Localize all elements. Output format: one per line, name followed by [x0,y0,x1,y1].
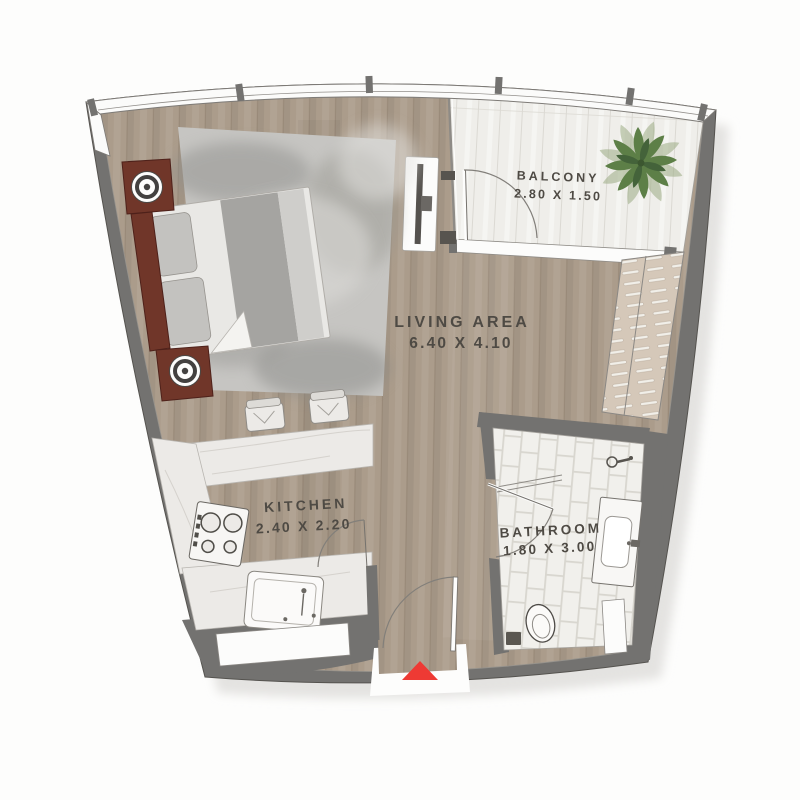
bed [143,187,331,361]
bathroom: BATHROOM 1.80 X 3.00 [477,412,668,660]
living-area-label: LIVING AREA [394,314,530,331]
bar-stool [244,397,285,432]
balcony-label: BALCONY [517,169,600,186]
kitchen-sink [244,571,325,633]
mullion-post [495,77,503,94]
floor-plan: BALCONY 2.80 X 1.50 [0,0,800,800]
balcony: BALCONY 2.80 X 1.50 [440,98,703,268]
partition-post [440,231,456,244]
table-lamp-icon [132,172,163,203]
stove-knob [194,532,199,538]
stove-knob [197,514,202,520]
vanity-faucet-icon [631,539,641,547]
floor-plan-svg: BALCONY 2.80 X 1.50 [0,0,800,800]
toilet-tank [506,632,521,645]
wall-niche [602,599,627,654]
bedroom-area [122,124,418,401]
partition-post [441,171,455,180]
bar-stool [308,389,349,424]
stove-knob [193,541,198,547]
living-area-dims: 6.40 X 4.10 [409,335,513,352]
stove [189,501,249,566]
stove-knob [196,523,201,529]
table-lamp-icon [170,356,201,387]
mullion-post [365,76,373,93]
